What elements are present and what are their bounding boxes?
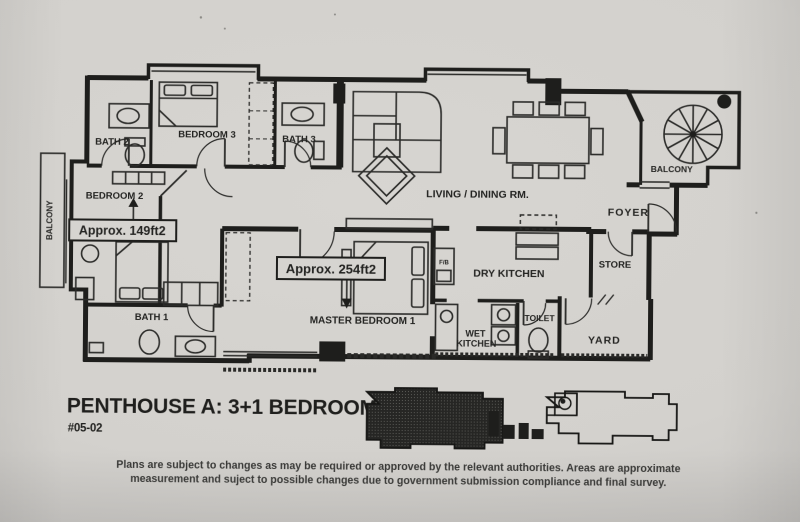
key-plan-adjacent-unit [547, 391, 677, 444]
area-master-bedroom: Approx. 254ft2 [286, 261, 376, 277]
floor-plan-tilt-wrapper: BATH 2 BEDROOM 3 BATH 3 BEDROOM 2 BALCON… [0, 0, 800, 522]
spiral-staircase [664, 94, 732, 164]
label-yard: YARD [588, 334, 621, 346]
plan-title: PENTHOUSE A: 3+1 BEDROOM [67, 394, 377, 419]
key-plan-unit-highlight [367, 388, 503, 449]
key-plan [367, 388, 677, 450]
floor-plan-photo: BATH 2 BEDROOM 3 BATH 3 BEDROOM 2 BALCON… [0, 0, 800, 522]
label-foyer: FOYER [608, 207, 649, 219]
label-bath3: BATH 3 [282, 134, 316, 145]
label-store: STORE [599, 260, 632, 271]
balcony-column-dot [717, 94, 731, 108]
label-dry-kitchen: DRY KITCHEN [473, 268, 544, 281]
disclaimer-line2: measurement and suject to possible chang… [130, 473, 666, 489]
unit-number: #05-02 [68, 422, 103, 434]
label-balcony-right: BALCONY [651, 164, 693, 174]
label-balcony-left: BALCONY [45, 200, 54, 240]
area-bedroom2: Approx. 149ft2 [79, 223, 166, 238]
label-toilet: TOILET [524, 313, 555, 323]
label-wet-kitchen-2: KITCHEN [456, 338, 496, 348]
label-bedroom3: BEDROOM 3 [178, 129, 236, 140]
label-bath1: BATH 1 [135, 312, 169, 323]
label-living-dining: LIVING / DINING RM. [426, 188, 529, 201]
floor-plan-drawing: BATH 2 BEDROOM 3 BATH 3 BEDROOM 2 BALCON… [0, 0, 800, 522]
label-utility-duct: F/B [439, 260, 449, 266]
label-wet-kitchen-1: WET [465, 329, 486, 339]
label-bath2: BATH 2 [95, 137, 129, 148]
label-master-bedroom1: MASTER BEDROOM 1 [310, 315, 416, 327]
area-callout-master: Approx. 254ft2 [277, 257, 385, 309]
